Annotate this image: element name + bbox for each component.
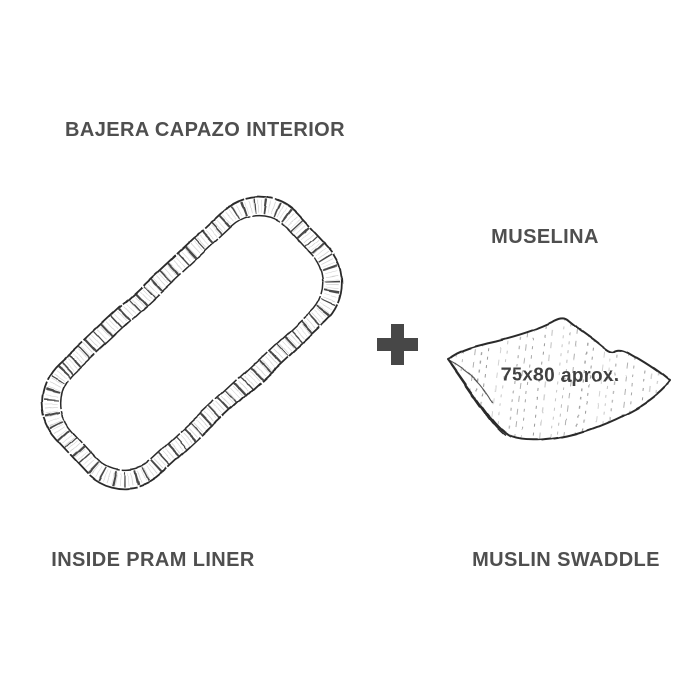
label-bajera-capazo-interior: BAJERA CAPAZO INTERIOR: [40, 119, 370, 141]
illustrations-layer: 75x80 aprox.: [0, 0, 700, 700]
plus-icon-vertical-bar: [391, 324, 404, 365]
label-muselina: MUSELINA: [445, 226, 645, 248]
muslin-size-label: 75x80 aprox.: [501, 365, 620, 386]
label-inside-pram-liner: INSIDE PRAM LINER: [13, 549, 293, 571]
product-diagram: 75x80 aprox. BAJERA CAPAZO INTERIOR MUSE…: [0, 0, 700, 700]
muslin-drawing: 75x80 aprox.: [433, 312, 670, 450]
plus-icon: [377, 324, 418, 365]
pram-liner-drawing: [20, 176, 364, 511]
label-muslin-swaddle: MUSLIN SWADDLE: [426, 549, 700, 571]
